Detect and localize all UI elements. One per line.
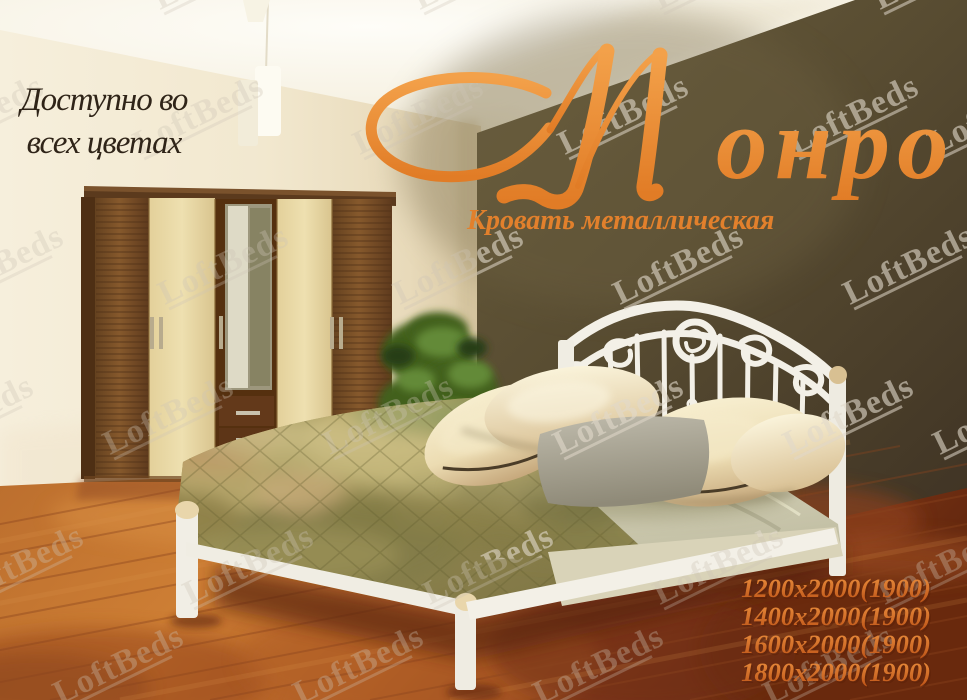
svg-text:1400х2000(1900): 1400х2000(1900) [741, 601, 931, 631]
svg-text:Кровать металлическая: Кровать металлическая [466, 205, 774, 236]
svg-text:1200х2000(1900): 1200х2000(1900) [741, 573, 931, 603]
svg-text:всех цветах: всех цветах [27, 125, 183, 161]
svg-text:1600х2000(1900): 1600х2000(1900) [741, 629, 931, 659]
svg-text:Доступно во: Доступно во [18, 82, 188, 118]
svg-text:онро: онро [716, 87, 956, 201]
svg-text:1800х2000(1900): 1800х2000(1900) [741, 657, 931, 687]
